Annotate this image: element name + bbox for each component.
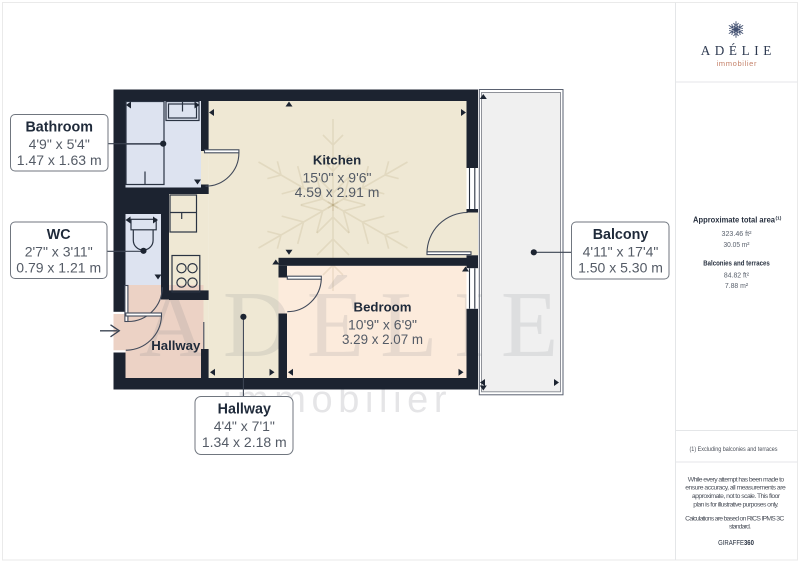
svg-text:0.79 x 1.21 m: 0.79 x 1.21 m: [16, 260, 101, 276]
svg-text:1.34 x 2.18 m: 1.34 x 2.18 m: [202, 434, 287, 450]
svg-text:ADÉLIE: ADÉLIE: [701, 43, 776, 58]
svg-text:Bathroom: Bathroom: [25, 120, 93, 136]
svg-text:15'0" x 9'6": 15'0" x 9'6": [303, 170, 372, 186]
svg-text:7.88 m²: 7.88 m²: [725, 281, 749, 290]
svg-text:WC: WC: [47, 227, 71, 243]
svg-text:2'7" x 3'11": 2'7" x 3'11": [25, 244, 93, 260]
svg-text:immobilier: immobilier: [716, 59, 757, 68]
svg-text:Approximate total area: Approximate total area: [693, 216, 776, 225]
svg-text:While every attempt has been m: While every attempt has been made to: [688, 476, 785, 483]
svg-text:4'11" x 17'4": 4'11" x 17'4": [583, 244, 659, 260]
svg-text:1.47 x 1.63 m: 1.47 x 1.63 m: [17, 152, 102, 168]
svg-text:3.29 x 2.07 m: 3.29 x 2.07 m: [342, 331, 423, 347]
svg-text:4'4" x 7'1": 4'4" x 7'1": [214, 418, 275, 434]
svg-text:Hallway: Hallway: [218, 402, 271, 418]
svg-text:Balcony: Balcony: [593, 227, 649, 243]
svg-text:84.82 ft²: 84.82 ft²: [724, 271, 750, 280]
svg-text:Bedroom: Bedroom: [354, 300, 412, 315]
svg-text:Hallway: Hallway: [151, 338, 201, 353]
svg-text:4'9" x 5'4": 4'9" x 5'4": [29, 136, 90, 152]
svg-text:30.05 m²: 30.05 m²: [724, 240, 751, 249]
svg-text:Kitchen: Kitchen: [313, 153, 361, 168]
svg-text:Balconies and terraces: Balconies and terraces: [703, 260, 770, 267]
svg-text:323.46 ft²: 323.46 ft²: [722, 229, 753, 238]
svg-text:(1): (1): [776, 216, 782, 222]
svg-text:(1) Excluding balconies and te: (1) Excluding balconies and terraces: [690, 446, 778, 453]
svg-text:ensure accuracy, all measureme: ensure accuracy, all measurements are: [685, 485, 786, 492]
svg-text:4.59 x 2.91 m: 4.59 x 2.91 m: [295, 184, 380, 200]
svg-text:approximate, not to scale. Thi: approximate, not to scale. This floor: [692, 493, 781, 500]
svg-text:Calculations are based on RICS: Calculations are based on RICS IPMS 3C: [685, 515, 784, 522]
svg-text:standard.: standard.: [729, 524, 751, 531]
svg-text:GIRAFFE360: GIRAFFE360: [718, 538, 754, 547]
svg-text:1.50 x 5.30 m: 1.50 x 5.30 m: [578, 260, 663, 276]
svg-text:plan is for illustrative purpo: plan is for illustrative purposes only.: [693, 502, 779, 509]
